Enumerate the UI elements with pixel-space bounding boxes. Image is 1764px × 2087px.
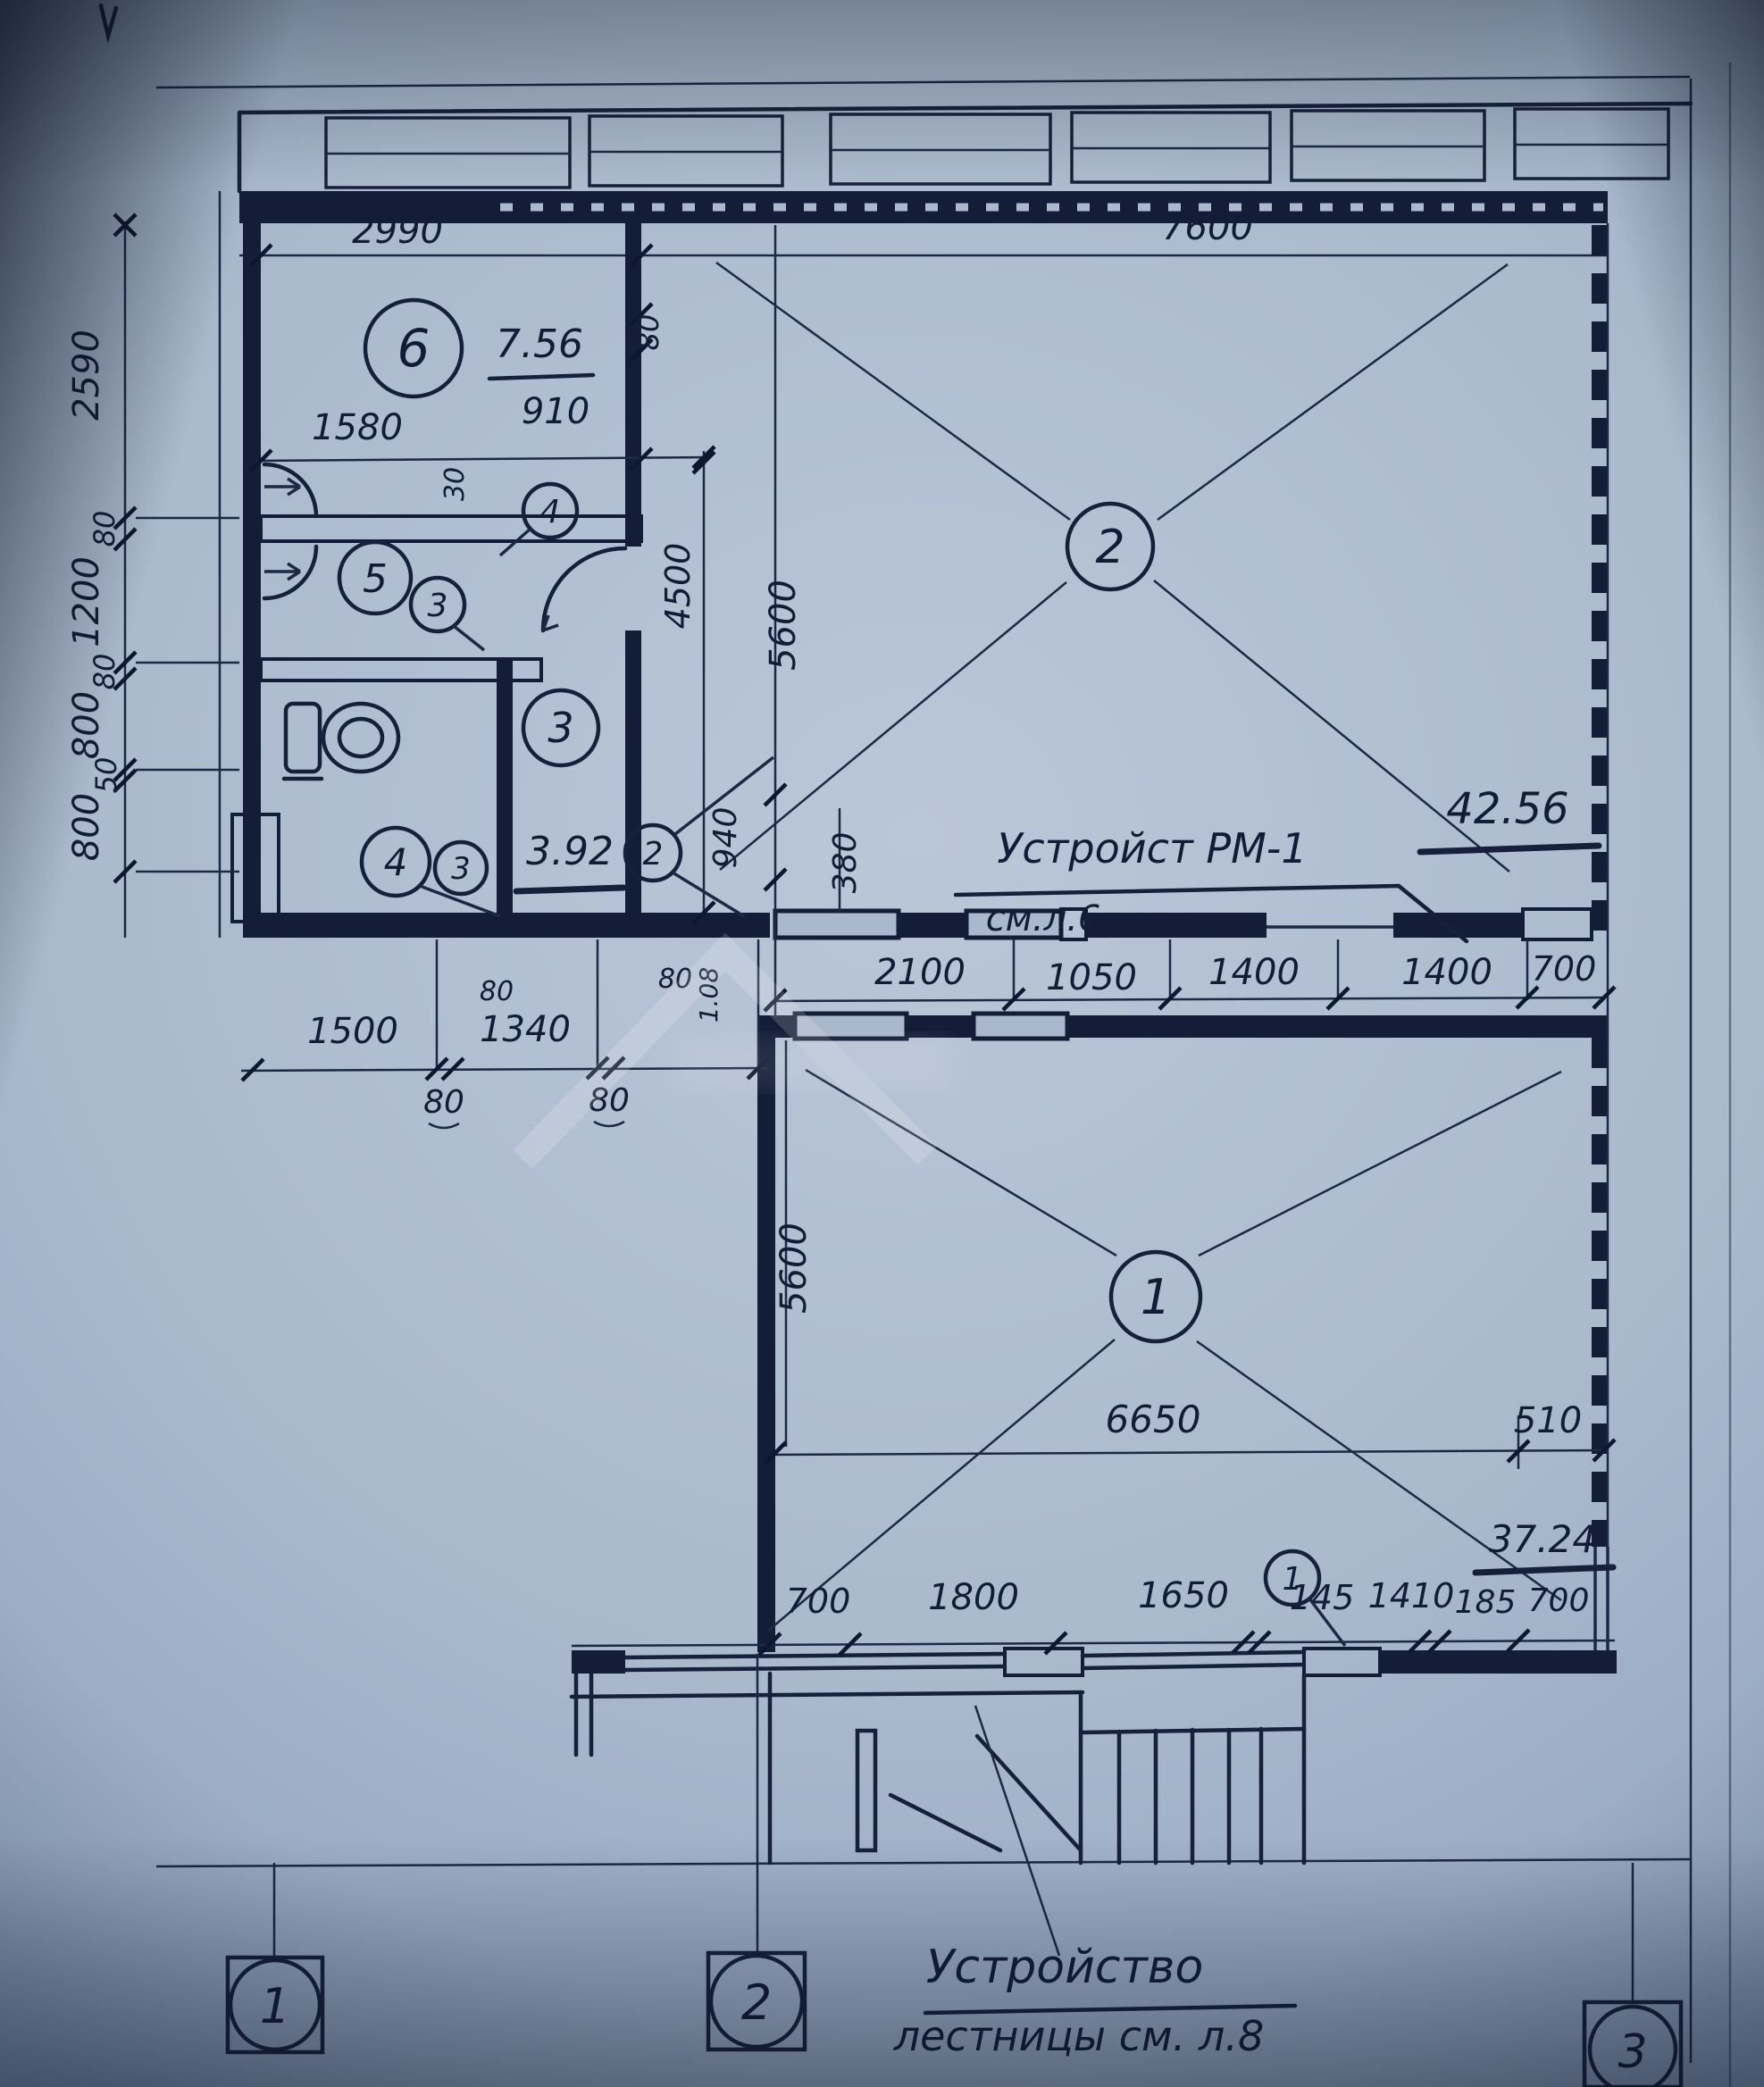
stairs	[770, 1674, 1304, 1863]
room3-number: 3	[548, 704, 573, 752]
dim-4500: 4500	[658, 543, 698, 630]
dim-700: 700	[1532, 949, 1597, 989]
detail2-number: 2	[643, 836, 664, 872]
stair-column	[857, 1731, 875, 1850]
room1-north-wall	[1067, 1015, 1608, 1038]
area-detail: 3.92	[526, 829, 614, 874]
floor-plan-drawing: 2990 7600 80 2590 80 1200 80 800 50 800 …	[0, 0, 1764, 2087]
mid-wall	[1084, 913, 1267, 938]
area-labels: 7.56 42.56 3.92 37.24	[489, 321, 1613, 1573]
dim-1650: 1650	[1138, 1575, 1229, 1616]
bottom-wall	[1380, 1650, 1617, 1674]
toilet-fixture	[284, 704, 398, 779]
dim-1200: 1200	[66, 556, 107, 647]
dim-700: 700	[1528, 1582, 1590, 1619]
dim-2100: 2100	[874, 952, 966, 993]
block-right-wall-lower	[625, 630, 641, 924]
room2-number: 2	[1095, 521, 1124, 574]
dim-510: 510	[1514, 1400, 1582, 1441]
top-window-band	[239, 104, 1691, 191]
axis-marker-2: 2	[708, 1953, 805, 2049]
top-wall	[239, 191, 1608, 223]
dim-1340: 1340	[480, 1009, 571, 1050]
dim-7600: 7600	[1162, 207, 1253, 248]
area-room2: 42.56	[1446, 784, 1568, 834]
blueprint-photo: 2990 7600 80 2590 80 1200 80 800 50 800 …	[0, 0, 1764, 2087]
dim-2590: 2590	[66, 330, 107, 421]
dim-910: 910	[522, 391, 589, 432]
dim-80: 80	[480, 976, 514, 1007]
dim-5600: 5600	[763, 580, 804, 671]
axis-marker-3: 3	[1584, 2002, 1681, 2087]
hatched-pier	[1304, 1649, 1380, 1675]
dim-1050: 1050	[1046, 957, 1137, 998]
room4-lower-number: 4	[384, 840, 408, 884]
dim-30: 30	[439, 467, 471, 501]
room1-north-wall	[907, 1015, 974, 1038]
axis-3-label: 3	[1618, 2025, 1647, 2079]
note-stairs-line2: лестницы см. л.8	[893, 2012, 1265, 2060]
dim-2990: 2990	[352, 211, 443, 252]
block-right-wall-upper	[625, 223, 641, 547]
partition-6-5	[261, 516, 641, 541]
detail3-lower-number: 3	[451, 851, 471, 887]
wc-wall	[497, 659, 513, 924]
dim-940: 940	[707, 807, 744, 869]
dim-1400: 1400	[1401, 952, 1492, 993]
dim-50: 50	[89, 757, 123, 794]
window1-number: 1	[1283, 1561, 1303, 1598]
bottom-wall	[572, 1650, 625, 1674]
area-room6: 7.56	[496, 321, 583, 367]
dim-80-wall: 80	[631, 314, 665, 351]
note-rm1-line2: см.л.6	[986, 898, 1101, 939]
room5-number: 5	[363, 556, 388, 602]
dim-1500: 1500	[307, 1011, 398, 1052]
dim-1800: 1800	[928, 1577, 1019, 1618]
dim-800: 800	[66, 793, 107, 861]
note-stairs-line1: Устройство	[926, 1941, 1204, 1994]
dim-5600-room1: 5600	[773, 1223, 815, 1314]
dim-1580: 1580	[312, 407, 403, 448]
wall-opening	[974, 1014, 1067, 1039]
room1-number: 1	[1141, 1269, 1171, 1325]
room1-left-wall	[757, 1015, 775, 1652]
dim-185: 185	[1455, 1584, 1517, 1621]
wall-opening	[775, 911, 899, 938]
hatched-pier	[232, 814, 279, 922]
dim-6650: 6650	[1106, 1398, 1201, 1441]
dim-80: 80	[88, 654, 121, 690]
dim-80: 80	[423, 1084, 464, 1121]
room1-cross-lines	[768, 1070, 1561, 1631]
note-rm1-line1: Устройст РМ-1	[997, 824, 1307, 872]
dim-80: 80	[88, 511, 121, 547]
window-sill-lines	[625, 1652, 1304, 1670]
room-bubbles: 6 5 3 4 3 4 3 2 2 1 1	[339, 300, 1345, 1646]
dim-380: 380	[827, 832, 864, 894]
axis-marker-1: 1	[228, 1958, 322, 2052]
hatched-pier	[1523, 909, 1592, 939]
dim-1400: 1400	[1208, 952, 1300, 993]
room6-number: 6	[397, 318, 431, 379]
axis-1-label: 1	[260, 1978, 290, 2034]
stair-break-lines	[890, 1736, 1081, 1850]
area-room1: 37.24	[1489, 1517, 1596, 1561]
corner-mark	[101, 5, 116, 36]
notes: Устройст РМ-1 см.л.6 Устройство лестницы…	[893, 824, 1467, 2060]
detail3-upper-number: 3	[428, 588, 448, 624]
stair-risers	[1119, 1729, 1261, 1863]
dim-1410: 1410	[1368, 1576, 1455, 1615]
block-bottom-wall	[243, 913, 770, 938]
axis-2-label: 2	[741, 1974, 772, 2031]
dim-800: 800	[66, 691, 107, 759]
room4-upper-number: 4	[540, 494, 561, 530]
dim-700: 700	[786, 1582, 851, 1621]
mid-wall	[899, 913, 966, 938]
